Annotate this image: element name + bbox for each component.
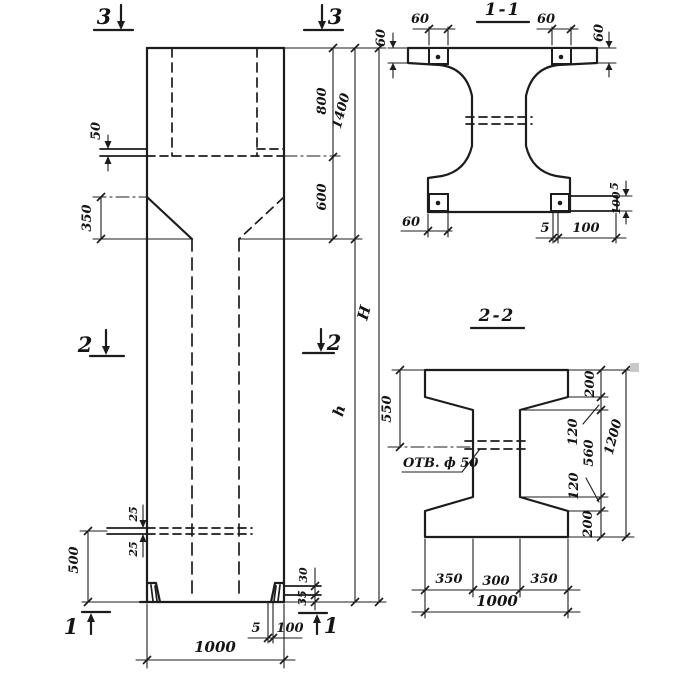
dim-label-25-upper: 25 [127,506,140,522]
marker-1-left-label: 1 [64,614,79,639]
embedded-plates [429,48,571,211]
dim-label-1000-section: 1000 [476,592,518,610]
dim-label-60-tr: 60 [537,12,555,27]
hole-callout: ОТВ. ф 50 [402,449,480,472]
dim-label-60-tl: 60 [411,12,429,27]
dim-label-35: 35 [296,590,309,605]
section-2-2-outline [425,370,568,537]
dim-label-600: 600 [315,183,330,210]
marker-1-right: 1 [299,613,338,638]
dim-label-350-left: 350 [435,572,462,587]
section-1-1: 1-1 60 [374,0,632,243]
section-1-1-title: 1-1 [485,0,522,20]
dim-label-5-side: 5 [608,182,621,190]
dim-label-120-top: 120 [566,418,581,445]
marker-2-right-label: 2 [326,330,342,355]
dim-label-800: 800 [315,87,330,114]
marker-2-right: 2 [303,329,341,355]
dim-label-300: 300 [482,574,509,589]
dim-label-50: 50 [89,122,104,140]
dim-label-500: 500 [67,546,82,573]
embedded-bar-lines [107,528,252,534]
section-markers: 3 3 2 2 [64,4,343,639]
dim-label-100: 100 [276,621,303,636]
capital-hidden-lines [100,48,340,156]
dim-label-1000: 1000 [194,638,236,656]
dim-bottom-chains: 350 300 350 1000 [412,539,580,618]
dim-right-chains: 200 120 560 120 200 1200 [520,366,634,541]
scan-artifact [630,363,639,372]
hole-centerlines [388,441,528,449]
dim-label-30: 30 [297,567,310,583]
section-1-1-hole-lines [466,117,532,124]
dim-label-h: h [329,403,349,418]
dim-label-100-side: 100 [610,191,623,214]
section-2-2: 2-2 ОТВ. ф 50 550 [380,306,639,618]
dim-label-120-bottom: 120 [567,472,582,499]
dim-label-350: 350 [80,204,95,231]
dim-label-5: 5 [251,621,260,636]
dim-label-1200: 1200 [602,418,626,457]
dim-shoe-side: 30 35 [296,567,319,610]
dim-550: 550 [380,366,425,451]
web-hidden-lines [192,239,239,597]
dim-label-350-right: 350 [530,572,557,587]
dim-label-H: H [353,303,375,323]
marker-2-left: 2 [77,330,124,357]
marker-3-right-label: 3 [328,4,343,29]
dim-label-60-left: 60 [374,29,389,47]
dim-label-100-bottom: 100 [572,221,599,236]
section-1-1-outline [408,48,597,212]
dim-taper-350: 350 [80,193,105,243]
drawing-sheet: 50 350 25 25 500 [0,0,700,700]
section-2-2-title: 2-2 [478,306,516,326]
dim-lug-group: 25 25 500 [67,505,147,606]
height-dimension-chains: 800 600 1400 h H [284,44,386,606]
marker-3-left: 3 [94,4,133,30]
elevation-view: 50 350 25 25 500 [64,4,386,668]
technical-drawing: 50 350 25 25 500 [0,0,700,700]
dim-label-60-right: 60 [592,24,607,42]
dim-label-60-bl: 60 [402,215,420,230]
marker-1-left: 1 [64,612,110,639]
section-1-1-dims: 60 60 60 60 [374,12,632,243]
dim-label-200-top: 200 [583,370,598,398]
dim-label-550: 550 [380,395,395,422]
marker-2-left-label: 2 [77,332,93,357]
hole-label: ОТВ. ф 50 [403,456,478,471]
dim-label-560: 560 [582,439,597,466]
dim-label-25-lower: 25 [127,541,140,557]
marker-3-right: 3 [304,4,343,30]
dim-shoe-bottom: 5 100 [248,603,304,643]
dim-console-plate: 50 [89,122,112,171]
marker-3-left-label: 3 [97,4,112,29]
dim-label-200-bottom: 200 [581,510,596,538]
left-foot [147,583,160,602]
marker-1-right-label: 1 [324,613,339,638]
dim-label-5-bottom: 5 [540,221,549,236]
